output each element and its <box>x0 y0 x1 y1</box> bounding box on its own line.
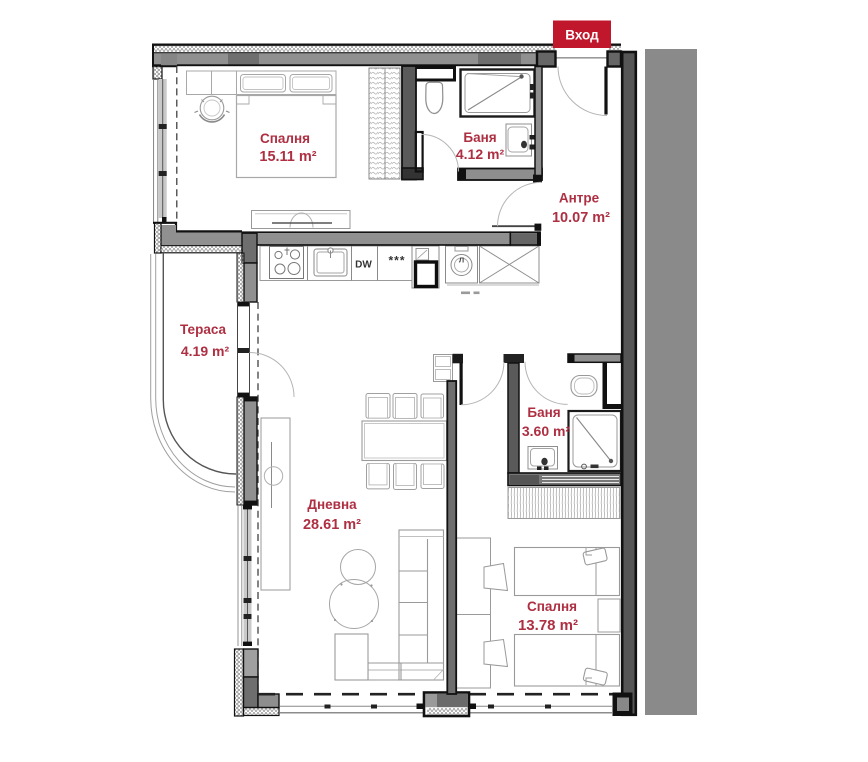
svg-text:***: *** <box>388 254 405 268</box>
svg-text:Баня: Баня <box>527 405 560 420</box>
svg-text:Спалня: Спалня <box>527 599 577 614</box>
svg-text:15.11 m²: 15.11 m² <box>259 149 316 165</box>
svg-text:13.78 m²: 13.78 m² <box>518 617 578 634</box>
svg-text:3.60 m²: 3.60 m² <box>522 423 571 439</box>
svg-text:4.12 m²: 4.12 m² <box>456 146 505 162</box>
svg-text:Баня: Баня <box>463 130 496 145</box>
svg-text:Л: Л <box>459 256 464 265</box>
svg-text:Тераса: Тераса <box>180 322 227 337</box>
svg-text:DW: DW <box>355 260 372 271</box>
svg-text:Спалня: Спалня <box>260 131 310 146</box>
svg-text:Вход: Вход <box>565 28 599 43</box>
svg-text:28.61 m²: 28.61 m² <box>303 517 361 533</box>
svg-text:Дневна: Дневна <box>307 497 357 512</box>
svg-text:Антре: Антре <box>559 191 600 206</box>
svg-text:4.19 m²: 4.19 m² <box>181 343 230 359</box>
svg-text:10.07 m²: 10.07 m² <box>552 210 610 226</box>
